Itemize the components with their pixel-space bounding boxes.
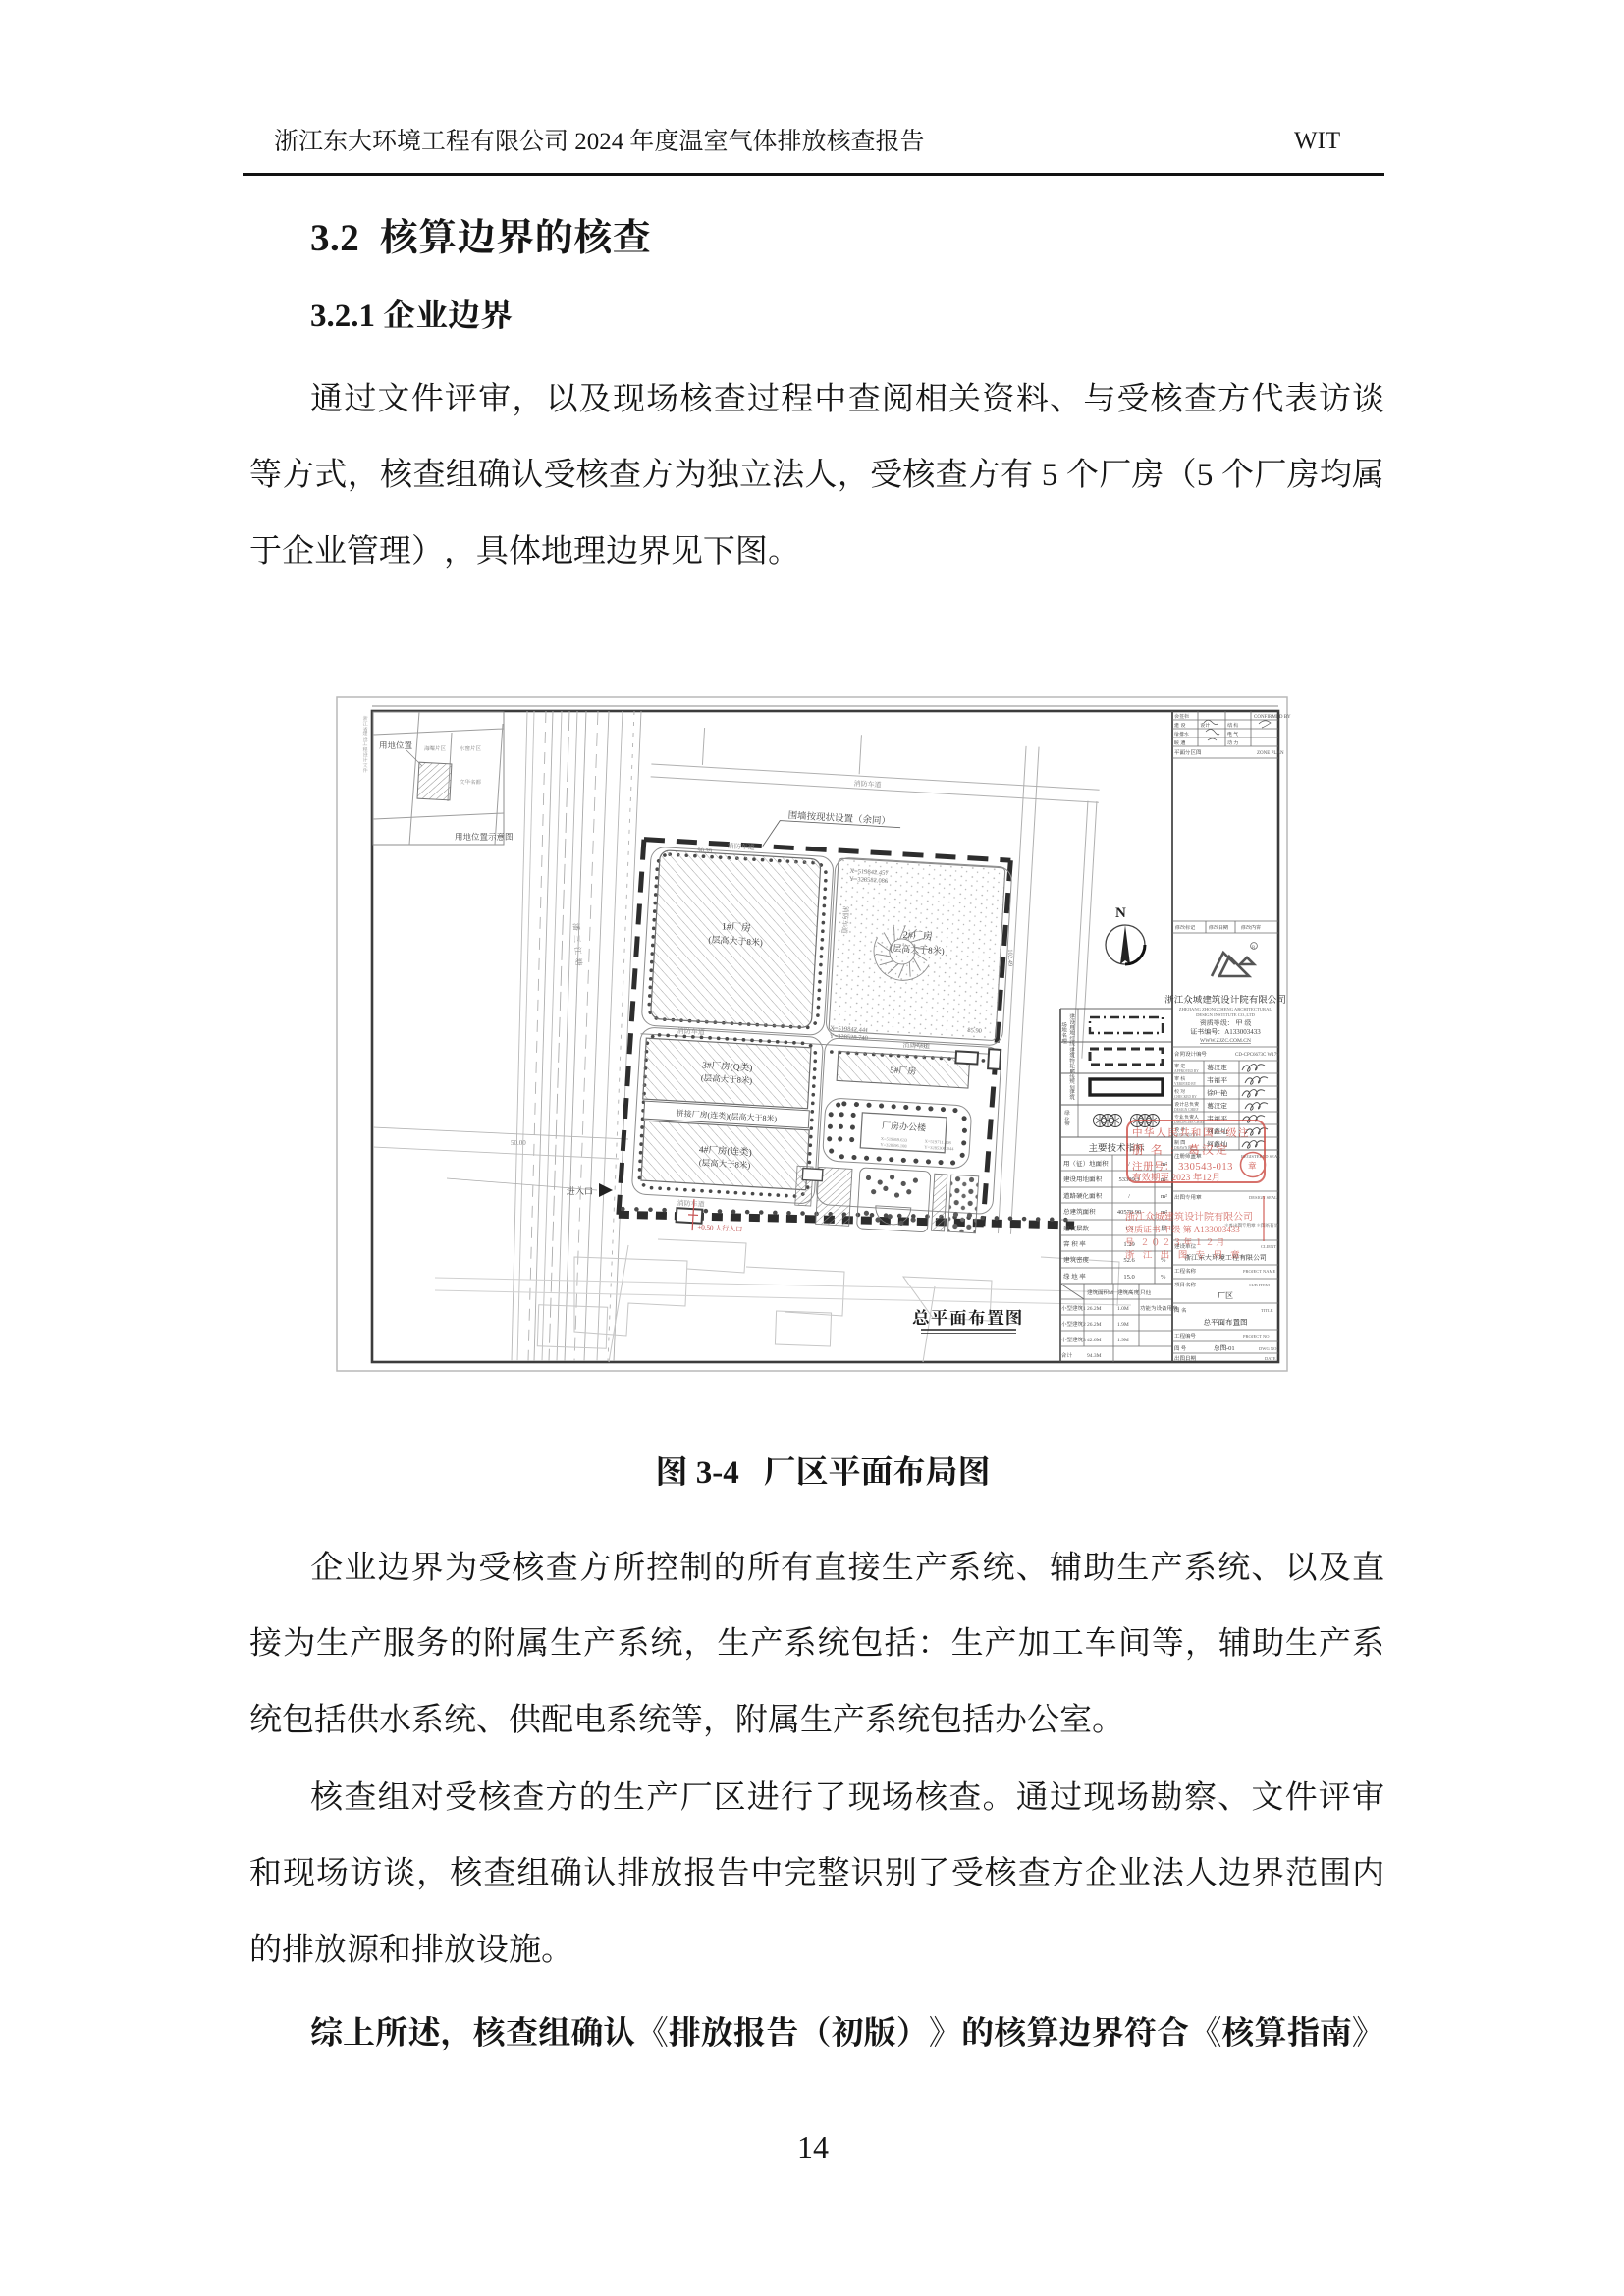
svg-text:号 ２０２３年１２月: 号 ２０２３年１２月 [1125, 1236, 1226, 1247]
svg-text:浙江众城建筑设计院有限公司: 浙江众城建筑设计院有限公司 [1164, 994, 1286, 1006]
svg-text:建筑面积M: 建筑面积M [1087, 1289, 1113, 1296]
svg-text:APPROVED BY: APPROVED BY [1174, 1069, 1199, 1073]
svg-text:DATE: DATE [1265, 1356, 1276, 1361]
svg-text:徐叶艳: 徐叶艳 [1207, 1089, 1227, 1098]
svg-text:94.3M: 94.3M [1087, 1353, 1102, 1359]
svg-text:证书编号：A133003433: 证书编号：A133003433 [1190, 1028, 1261, 1036]
svg-text:设计总负责: 设计总负责 [1174, 1101, 1199, 1108]
svg-text:动 力: 动 力 [1227, 739, 1238, 746]
svg-text:绿 地 率: 绿 地 率 [1063, 1273, 1086, 1281]
svg-text:会签栏: 会签栏 [1174, 713, 1190, 720]
svg-text:校 对: 校 对 [1174, 1088, 1185, 1095]
svg-text:给排水: 给排水 [1174, 731, 1189, 738]
svg-text:工程编号: 工程编号 [1174, 1333, 1197, 1339]
svg-text:CONFIRMED BY: CONFIRMED BY [1254, 715, 1291, 720]
svg-text:平面分区图: 平面分区图 [1174, 749, 1202, 756]
svg-text:章: 章 [1248, 1161, 1257, 1171]
svg-text:专业负责人: 专业负责人 [1174, 1114, 1200, 1121]
svg-text:葛汉定: 葛汉定 [1207, 1064, 1227, 1072]
svg-text:修改日期: 修改日期 [1208, 925, 1228, 931]
svg-text:海曙片区: 海曙片区 [423, 745, 447, 752]
svg-text:出图日期: 出图日期 [1174, 1355, 1197, 1362]
svg-text:册 名 ： 葛汉定: 册 名 ： 葛汉定 [1132, 1143, 1229, 1157]
svg-text:消防车道: 消防车道 [727, 842, 754, 852]
svg-text:m²: m² [1161, 1193, 1167, 1200]
svg-text:审 核: 审 核 [1174, 1075, 1186, 1082]
svg-text:DWG NO: DWG NO [1259, 1346, 1277, 1351]
svg-text:用地位置: 用地位置 [379, 740, 413, 750]
svg-text:厂区: 厂区 [1218, 1291, 1233, 1300]
svg-text:电 气: 电 气 [1227, 731, 1239, 738]
svg-text:建设用地红线: 建设用地红线 [1068, 1013, 1075, 1047]
svg-text:建筑密度: 建筑密度 [1062, 1256, 1090, 1264]
svg-text:消防车道: 消防车道 [853, 779, 881, 790]
svg-text:VERIFIED BY: VERIFIED BY [1174, 1082, 1197, 1086]
svg-text:42.6M: 42.6M [1087, 1338, 1102, 1343]
svg-text:1.9M: 1.9M [1117, 1338, 1129, 1343]
svg-text:CD-CPC6673C W179: CD-CPC6673C W179 [1235, 1053, 1279, 1058]
svg-text:设计: 设计 [1200, 722, 1211, 729]
svg-text:%: % [1161, 1274, 1166, 1281]
svg-text:有效期至 2023 年12月: 有效期至 2023 年12月 [1132, 1172, 1220, 1183]
svg-text:WWW.ZJZC.COM.CN: WWW.ZJZC.COM.CN [1200, 1038, 1251, 1044]
svg-text:浙江众城建筑设计院有限公司: 浙江众城建筑设计院有限公司 [1125, 1211, 1253, 1223]
svg-text:浙 江 出 图 专 用 章: 浙 江 出 图 专 用 章 [1125, 1249, 1243, 1261]
svg-text:建筑高度: 建筑高度 [1117, 1289, 1140, 1296]
svg-text:DESIGN CHIEF: DESIGN CHIEF [1174, 1108, 1198, 1112]
svg-text:修改内容: 修改内容 [1240, 924, 1261, 931]
svg-text:图 号: 图 号 [1174, 1345, 1187, 1352]
svg-text:94.88: 94.88 [912, 1042, 927, 1050]
svg-text:PROJECT NO: PROJECT NO [1243, 1334, 1270, 1339]
svg-text:PROJECT NAME: PROJECT NAME [1243, 1269, 1276, 1274]
svg-text:1.9M: 1.9M [1117, 1322, 1129, 1328]
svg-text:总建筑面积: 总建筑面积 [1063, 1208, 1096, 1216]
svg-text:注册号： 330543-013: 注册号： 330543-013 [1132, 1161, 1233, 1173]
svg-text:审 定: 审 定 [1174, 1063, 1185, 1069]
svg-text:50.00: 50.00 [511, 1139, 526, 1147]
svg-text:暖 通: 暖 通 [1174, 739, 1185, 746]
svg-text:出图专用章: 出图专用章 [1174, 1194, 1202, 1201]
svg-text:N: N [1115, 905, 1126, 921]
svg-text:5#厂房: 5#厂房 [890, 1065, 917, 1076]
svg-text:102.49: 102.49 [1006, 949, 1013, 966]
svg-text:规划建筑: 规划建筑 [1068, 1078, 1075, 1101]
svg-text:资质证书 甲级 第 A133003433: 资质证书 甲级 第 A133003433 [1125, 1225, 1240, 1234]
svg-text:小型建筑2: 小型建筑2 [1061, 1321, 1086, 1328]
svg-text:ZONE PLAN: ZONE PLAN [1257, 751, 1284, 756]
svg-text:水窗片区: 水窗片区 [460, 745, 482, 752]
svg-text:合同设计编号: 合同设计编号 [1174, 1051, 1208, 1058]
svg-text:葛汉定: 葛汉定 [1207, 1102, 1227, 1111]
svg-text:SUB ITEM: SUB ITEM [1249, 1283, 1270, 1287]
svg-text:26.2M: 26.2M [1087, 1322, 1102, 1328]
svg-text:资质等级： 甲 级: 资质等级： 甲 级 [1200, 1018, 1252, 1027]
svg-text:26.2M: 26.2M [1087, 1306, 1102, 1312]
svg-text:1.0M: 1.0M [1117, 1306, 1129, 1312]
svg-text:总平面布置图: 总平面布置图 [912, 1308, 1024, 1328]
svg-text:消防车道: 消防车道 [677, 1026, 705, 1037]
svg-text:修改标记: 修改标记 [1174, 924, 1195, 931]
svg-text:2#厂房: 2#厂房 [902, 929, 933, 943]
svg-text:用（征）地面积: 用（征）地面积 [1063, 1160, 1109, 1168]
svg-text:建 设: 建 设 [1173, 722, 1186, 729]
svg-text:道路硬化面积: 道路硬化面积 [1063, 1192, 1103, 1200]
svg-text:建设用地面积: 建设用地面积 [1062, 1175, 1103, 1183]
svg-text:总平面布置图: 总平面布置图 [1204, 1318, 1248, 1327]
svg-text:90.39: 90.39 [697, 847, 712, 855]
svg-text:CLIENT: CLIENT [1261, 1244, 1276, 1249]
svg-text:场地名理: 场地名理 [1060, 1021, 1067, 1043]
svg-text:CHECKED BY: CHECKED BY [1174, 1095, 1197, 1099]
svg-text:项目名称: 项目名称 [1174, 1282, 1197, 1288]
svg-text:容 积 率: 容 积 率 [1063, 1240, 1086, 1248]
svg-text:/: / [1128, 1161, 1130, 1168]
svg-text:韦福平: 韦福平 [1207, 1115, 1227, 1123]
svg-text:消防车道: 消防车道 [840, 905, 851, 933]
svg-text:ZHEJIANG ZHONGCHENG ARCHITECTU: ZHEJIANG ZHONGCHENG ARCHITECTURAL [1179, 1007, 1272, 1011]
svg-text:工程名称: 工程名称 [1174, 1268, 1197, 1275]
svg-text:用地位置示意图: 用地位置示意图 [455, 832, 514, 842]
svg-text:文华名都: 文华名都 [460, 779, 482, 786]
svg-text:图 名: 图 名 [1174, 1307, 1187, 1314]
svg-text:中华人民共和国一级注: 中华人民共和国一级注 [1132, 1126, 1250, 1139]
svg-text:总图-01: 总图-01 [1214, 1344, 1235, 1352]
svg-text:/: / [1128, 1193, 1130, 1200]
svg-text:85.90: 85.90 [967, 1027, 982, 1035]
svg-text:15.0: 15.0 [1123, 1274, 1134, 1281]
svg-text:只他: 只他 [1140, 1288, 1152, 1296]
svg-text:建筑层数: 建筑层数 [1062, 1225, 1090, 1232]
svg-text:小型建筑1: 小型建筑1 [1061, 1305, 1086, 1312]
svg-text:合计: 合计 [1061, 1352, 1073, 1359]
svg-text:韦福平: 韦福平 [1207, 1076, 1227, 1085]
svg-text:结 构: 结 构 [1226, 722, 1238, 729]
svg-text:1#厂房: 1#厂房 [722, 920, 752, 934]
svg-text:TITLE: TITLE [1261, 1308, 1273, 1313]
svg-text:消防车道: 消防车道 [677, 1198, 704, 1209]
svg-text:小型建筑3: 小型建筑3 [1061, 1337, 1086, 1343]
